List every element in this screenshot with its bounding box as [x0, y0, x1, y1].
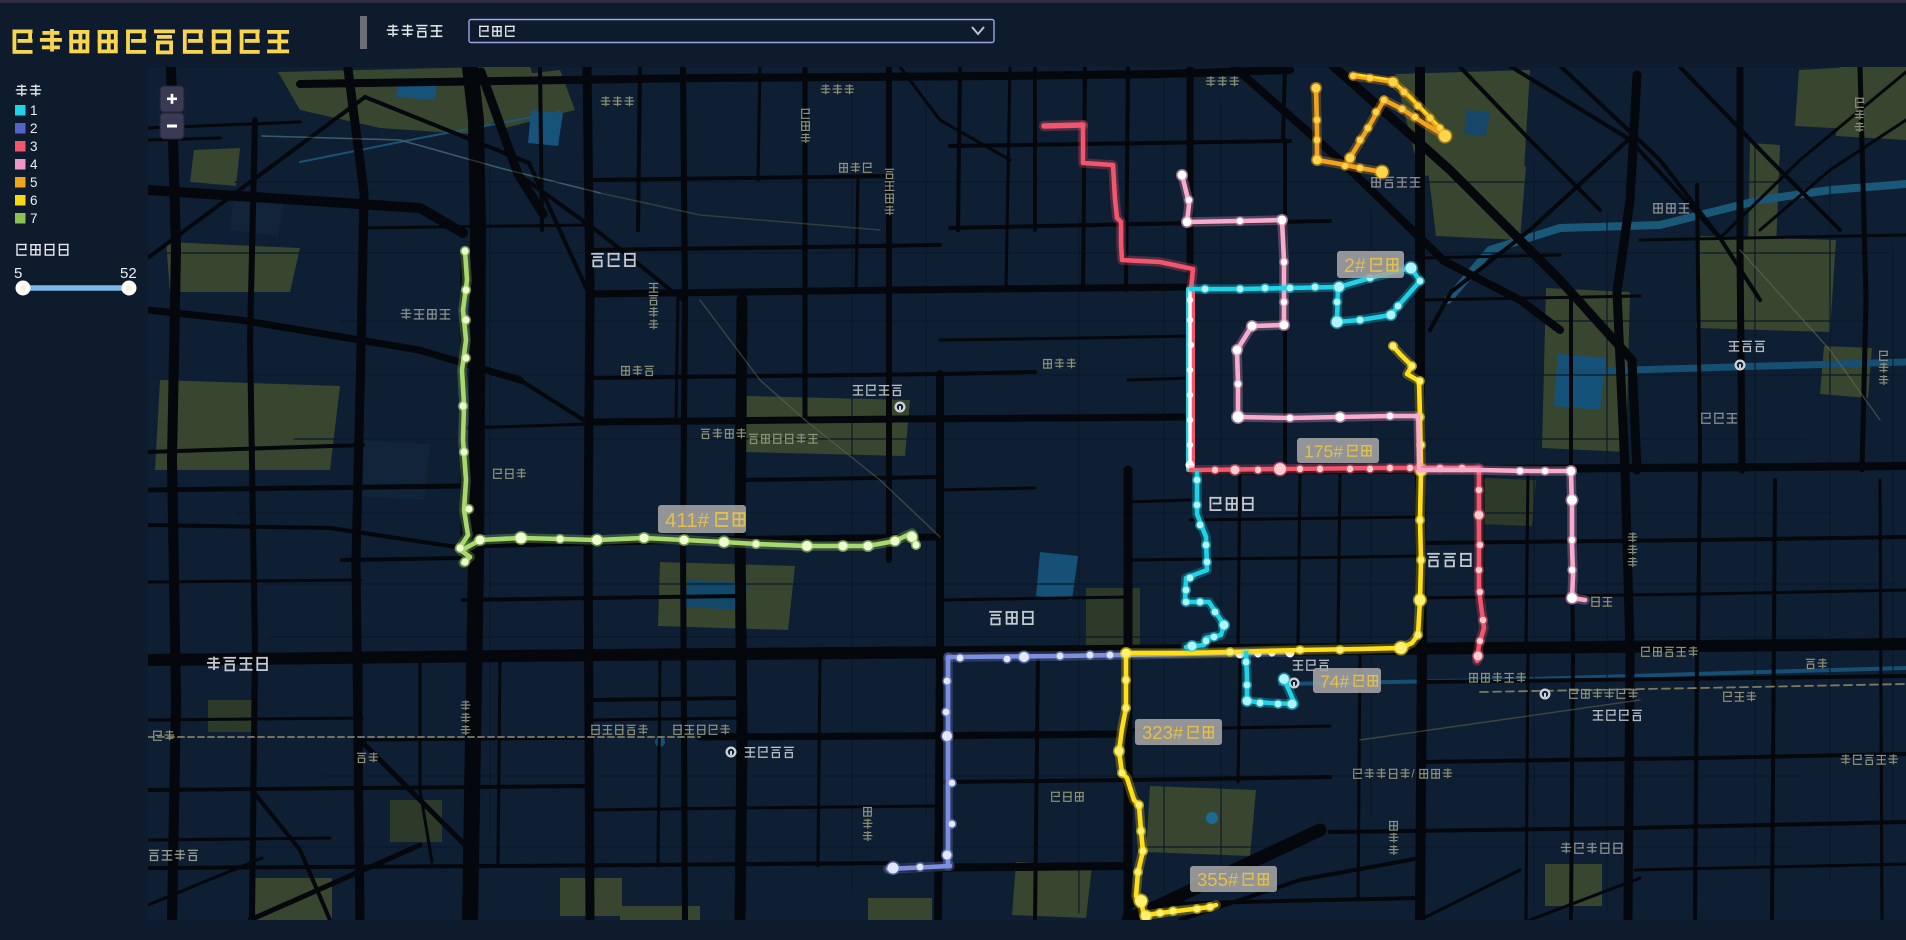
- svg-text:52: 52: [120, 265, 137, 282]
- svg-text:355#: 355#: [1197, 869, 1239, 890]
- svg-text:5: 5: [14, 265, 22, 282]
- svg-text:323#: 323#: [1142, 722, 1184, 743]
- svg-text:3: 3: [30, 139, 38, 154]
- svg-text:4: 4: [30, 157, 38, 172]
- svg-text:6: 6: [30, 193, 38, 208]
- svg-text:175#: 175#: [1304, 441, 1343, 461]
- svg-text:74#: 74#: [1320, 671, 1349, 691]
- svg-text:5: 5: [30, 175, 38, 190]
- svg-text:7: 7: [30, 211, 38, 226]
- svg-text:2: 2: [30, 121, 38, 136]
- svg-text:411#: 411#: [665, 509, 710, 532]
- svg-text:1: 1: [30, 103, 38, 118]
- svg-text:2#: 2#: [1344, 255, 1366, 277]
